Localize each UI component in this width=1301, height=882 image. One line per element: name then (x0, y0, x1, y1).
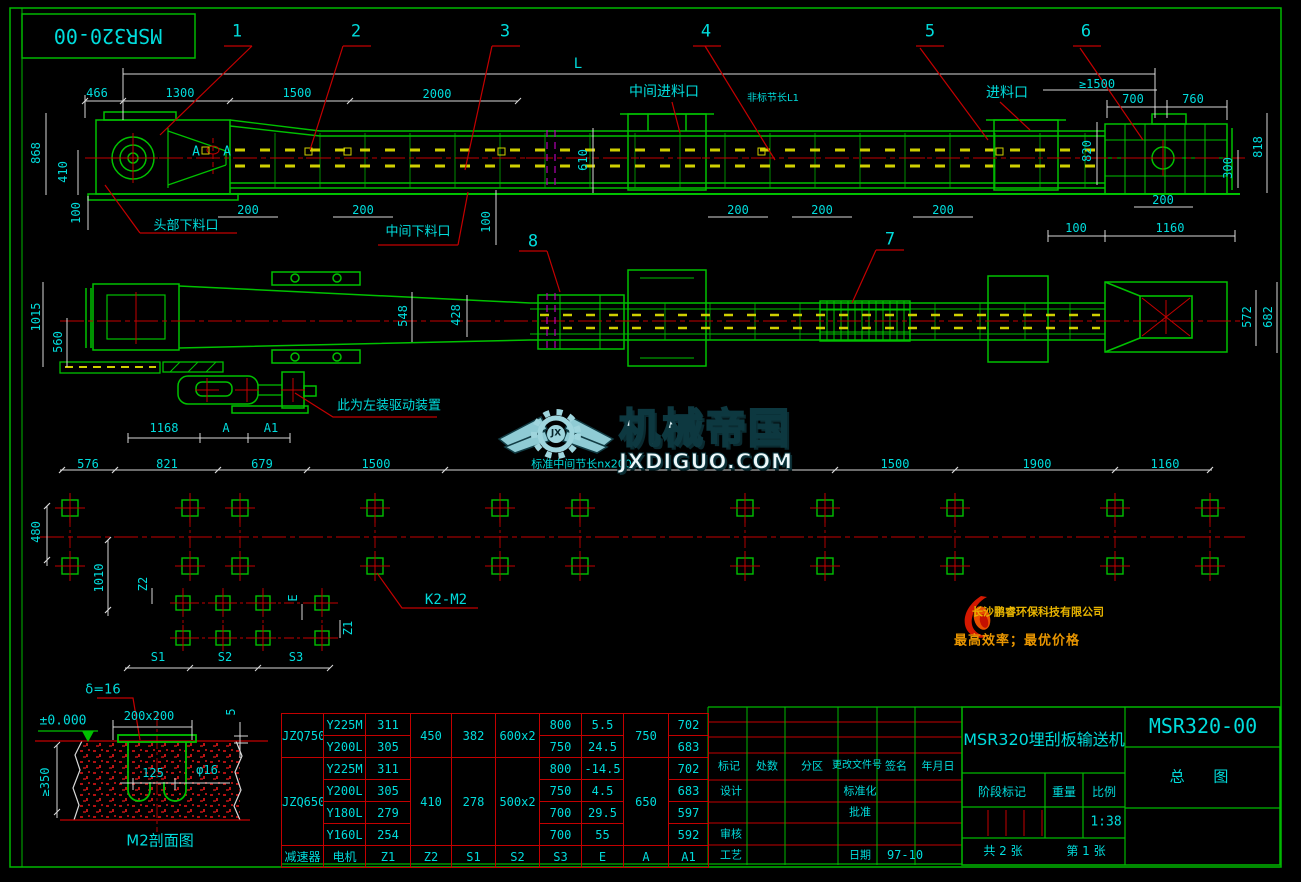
label-stage: 阶段标记 (978, 786, 1026, 798)
label-check: 审核 (720, 829, 742, 840)
dim-5: 5 (225, 708, 237, 715)
dim-125: 125 (142, 767, 164, 779)
dim-576: 576 (77, 458, 99, 470)
label-design: 设计 (720, 786, 742, 797)
watermark-brand: 机械帝国 (619, 409, 791, 450)
dim-Z2: Z2 (137, 577, 149, 591)
section-mark-a2: A (223, 146, 231, 159)
rev-header-mark: 标记 (718, 761, 740, 772)
cell-motor: Y200L (324, 780, 366, 802)
company-name: 长沙鹏睿环保科技有限公司 (972, 607, 1104, 618)
dim-820: 820 (1081, 140, 1093, 162)
label-drive-note: 此为左装驱动装置 (337, 400, 441, 413)
cell-a1: 702 (669, 758, 709, 780)
label-level: ±0.000 (40, 715, 87, 728)
cell-s2: 500x2 (496, 758, 540, 846)
dim-1500b: 1500 (881, 458, 910, 470)
cell-a: 750 (624, 714, 669, 758)
label-head-outlet: 头部下料口 (153, 220, 218, 233)
dim-Z1: Z1 (342, 621, 354, 635)
cell-motor: Y160L (324, 824, 366, 846)
cell-a1: 597 (669, 802, 709, 824)
dim-700: 700 (1122, 93, 1144, 105)
cell-s3: 700 (540, 802, 582, 824)
callout-5: 5 (925, 24, 935, 41)
cell-e: 24.5 (582, 736, 624, 758)
drawing-code-topbox: MSR320-00 (54, 26, 162, 46)
dim-428: 428 (450, 304, 462, 326)
cell-s3: 800 (540, 714, 582, 736)
product-title: MSR320埋刮板输送机 (963, 732, 1125, 748)
value-date: 97-10 (887, 849, 923, 861)
dimension-lines (43, 68, 1277, 367)
label-l1: 非标节长L1 (747, 94, 799, 104)
cell-s3: 750 (540, 780, 582, 802)
dim-200f: 200 (1152, 194, 1174, 206)
callout-7: 7 (885, 232, 895, 249)
label-inlet: 进料口 (986, 86, 1028, 100)
dim-682: 682 (1262, 306, 1274, 328)
plan-view (60, 270, 1245, 373)
dim-572: 572 (1241, 306, 1253, 328)
company-slogan: 最高效率；最优价格 (954, 635, 1080, 648)
dim-1300: 1300 (166, 87, 195, 99)
watermark-initials: JX (551, 430, 561, 439)
dim-821: 821 (156, 458, 178, 470)
callout-1: 1 (232, 24, 242, 41)
dim-100a: 100 (70, 202, 82, 224)
dim-2000: 2000 (423, 88, 452, 100)
dim-ge350: ≥350 (39, 768, 51, 797)
dim-L: L (574, 57, 582, 71)
cell-reducer: JZQ750 (282, 714, 324, 758)
dim-1160: 1160 (1156, 222, 1185, 234)
dim-300: 300 (1222, 157, 1234, 179)
dim-466: 466 (86, 87, 108, 99)
cell-e: 29.5 (582, 802, 624, 824)
cell-motor: Y225M (324, 758, 366, 780)
sheet-name: 总 图 (1170, 770, 1241, 785)
cell-z2: 450 (411, 714, 452, 758)
label-standardize: 标准化 (844, 786, 877, 797)
cell-s3: 750 (540, 736, 582, 758)
dim-E: E (287, 594, 299, 601)
parameter-table: JZQ750 Y225M 311 450 382 600x2 800 5.5 7… (281, 713, 709, 868)
cell-z1: 311 (366, 714, 411, 736)
cell-e: 55 (582, 824, 624, 846)
cad-drawing-canvas: MSR320-00 1 2 3 4 5 6 7 8 L 466 1300 150… (0, 0, 1301, 882)
dim-100b: 100 (480, 211, 492, 233)
dim-679: 679 (251, 458, 273, 470)
dim-1168: 1168 (150, 422, 179, 434)
cell-a: 650 (624, 758, 669, 846)
cell-s3: 700 (540, 824, 582, 846)
dim-560: 560 (52, 331, 64, 353)
callout-8: 8 (528, 234, 538, 251)
cell-a1: 702 (669, 714, 709, 736)
dim-200x200: 200x200 (124, 710, 175, 722)
cell-motor: Y225M (324, 714, 366, 736)
dim-760: 760 (1182, 93, 1204, 105)
section-mark-a1: A (192, 146, 200, 159)
cell-z1: 305 (366, 736, 411, 758)
dim-200c: 200 (727, 204, 749, 216)
dim-200d: 200 (811, 204, 833, 216)
label-mid-outlet: 中间下料口 (385, 226, 450, 239)
dim-200a: 200 (237, 204, 259, 216)
cell-e: -14.5 (582, 758, 624, 780)
dim-1015: 1015 (30, 303, 42, 332)
label-date: 日期 (849, 850, 871, 861)
dim-548: 548 (397, 305, 409, 327)
drawing-code: MSR320-00 (1149, 716, 1257, 736)
dim-1500a: 1500 (362, 458, 391, 470)
table-header-row: 减速器 电机 Z1 Z2 S1 S2 S3 E A A1 (282, 846, 709, 868)
cell-a1: 683 (669, 736, 709, 758)
dim-A: A (222, 422, 229, 434)
cell-s1: 382 (452, 714, 496, 758)
dim-818: 818 (1252, 136, 1264, 158)
rev-header-sign: 签名 (885, 761, 907, 772)
dim-610: 610 (577, 149, 589, 171)
label-craft: 工艺 (720, 850, 742, 861)
dim-1500: 1500 (283, 87, 312, 99)
label-k2m2: K2-M2 (425, 593, 467, 607)
dim-1010: 1010 (93, 564, 105, 593)
cell-e: 4.5 (582, 780, 624, 802)
cell-a1: 683 (669, 780, 709, 802)
dim-480: 480 (30, 521, 42, 543)
callout-6: 6 (1081, 24, 1091, 41)
table-row: JZQ750 Y225M 311 450 382 600x2 800 5.5 7… (282, 714, 709, 736)
dim-200e: 200 (932, 204, 954, 216)
dim-200b: 200 (352, 204, 374, 216)
cell-z2: 410 (411, 758, 452, 846)
dim-100c: 100 (1065, 222, 1087, 234)
value-scale: 1:38 (1090, 816, 1121, 829)
col-header-s2: S2 (496, 846, 540, 868)
cell-z1: 311 (366, 758, 411, 780)
label-weight: 重量 (1052, 786, 1076, 798)
cell-reducer: JZQ650 (282, 758, 324, 846)
label-sheet-page: 第 1 张 (1066, 845, 1105, 857)
dim-410: 410 (57, 161, 69, 183)
cell-s1: 278 (452, 758, 496, 846)
col-header-s3: S3 (540, 846, 582, 868)
cell-a1: 592 (669, 824, 709, 846)
dim-S2: S2 (218, 651, 232, 663)
cell-z1: 254 (366, 824, 411, 846)
cell-z1: 279 (366, 802, 411, 824)
rev-header-count: 处数 (756, 761, 778, 772)
label-sheet-total: 共 2 张 (983, 845, 1022, 857)
elevation-view (85, 112, 1245, 200)
rev-header-docno: 更改文件号 (832, 761, 882, 771)
dim-delta16: δ=16 (85, 684, 120, 697)
callout-4: 4 (701, 24, 711, 41)
col-header-z1: Z1 (366, 846, 411, 868)
cell-motor: Y180L (324, 802, 366, 824)
dim-phi16: φ16 (196, 764, 218, 776)
callout-3: 3 (500, 24, 510, 41)
col-header-a: A (624, 846, 669, 868)
col-header-a1: A1 (669, 846, 709, 868)
dim-868: 868 (30, 142, 42, 164)
dim-A1: A1 (264, 422, 278, 434)
dim-S3: S3 (289, 651, 303, 663)
col-header-z2: Z2 (411, 846, 452, 868)
cell-s3: 800 (540, 758, 582, 780)
rev-header-zone: 分区 (801, 761, 823, 772)
label-approve: 批准 (849, 807, 871, 818)
cell-motor: Y200L (324, 736, 366, 758)
cell-z1: 305 (366, 780, 411, 802)
dim-ge1500: ≥1500 (1079, 78, 1115, 90)
dim-S1: S1 (151, 651, 165, 663)
cell-s2: 600x2 (496, 714, 540, 758)
rev-header-date: 年月日 (922, 761, 955, 772)
label-mid-inlet: 中间进料口 (629, 85, 699, 99)
dim-1900: 1900 (1023, 458, 1052, 470)
col-header-reducer: 减速器 (282, 846, 324, 868)
cell-e: 5.5 (582, 714, 624, 736)
table-row: JZQ650 Y225M 311 410 278 500x2 800 -14.5… (282, 758, 709, 780)
col-header-s1: S1 (452, 846, 496, 868)
watermark-domain: JXDIGUO.COM (619, 452, 793, 473)
label-m2-title: M2剖面图 (126, 834, 194, 849)
callout-2: 2 (351, 24, 361, 41)
col-header-e: E (582, 846, 624, 868)
label-scale: 比例 (1092, 786, 1116, 798)
dim-1160b: 1160 (1151, 458, 1180, 470)
col-header-motor: 电机 (324, 846, 366, 868)
